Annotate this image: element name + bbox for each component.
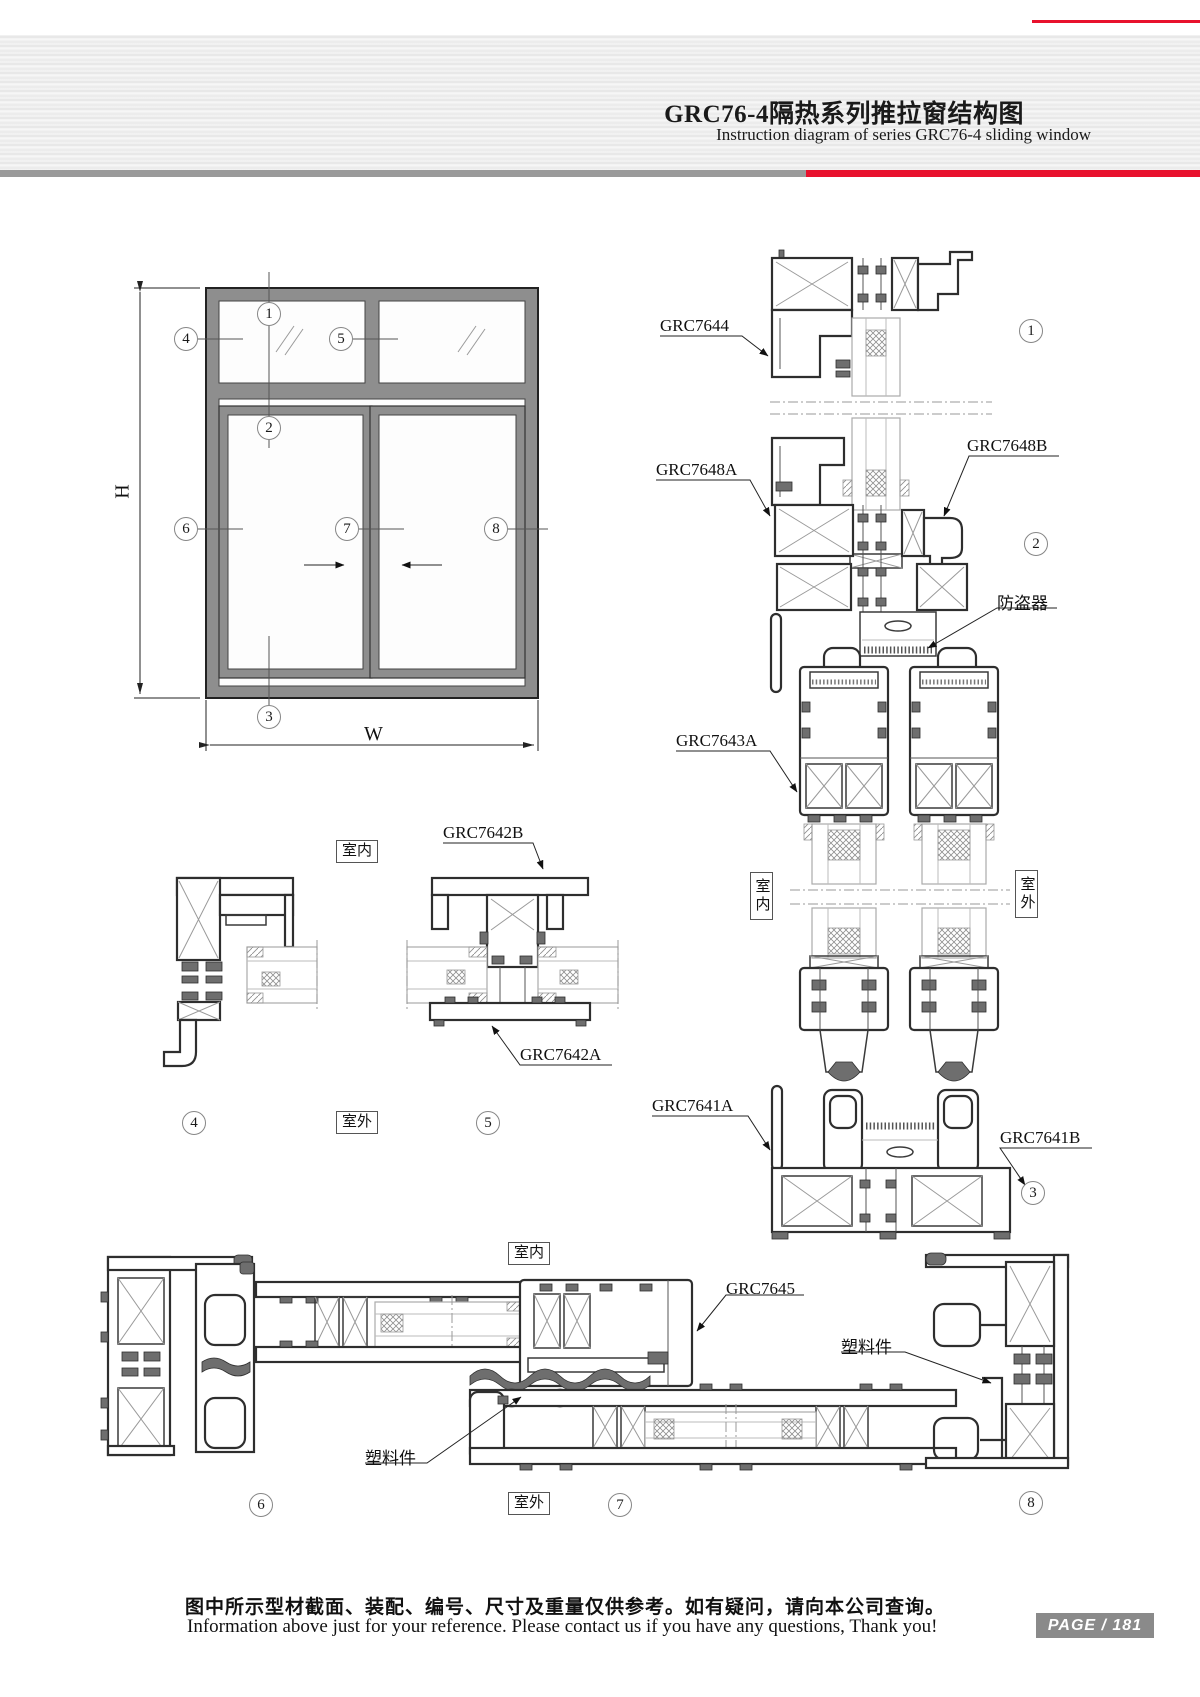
label-grc7648b: GRC7648B [967, 436, 1047, 456]
label-grc7648a: GRC7648A [656, 460, 737, 480]
label-anti-theft: 防盗器 [997, 589, 1048, 614]
label-grc7641a: GRC7641A [652, 1096, 733, 1116]
label-plastic-left: 塑料件 [365, 1444, 416, 1469]
callout-vsec-2: 2 [1024, 532, 1048, 556]
callout-8: 8 [484, 517, 508, 541]
callout-6: 6 [174, 517, 198, 541]
callout-hsec-6: 6 [249, 1493, 273, 1517]
callout-hsec-5: 5 [476, 1111, 500, 1135]
callout-hsec-4: 4 [182, 1111, 206, 1135]
section-5-profile [407, 878, 618, 1026]
label-hsec-bottom-outdoor: 室外 [508, 1492, 550, 1515]
callout-hsec-7: 7 [608, 1493, 632, 1517]
horizontal-section-bottom-drawing [101, 1253, 1068, 1470]
profile-grc7641a-b [772, 1086, 1010, 1239]
label-hsec-top-outdoor: 室外 [336, 1111, 378, 1134]
dim-label-h: H [112, 484, 135, 498]
label-grc7642a: GRC7642A [520, 1045, 601, 1065]
label-hsec-bottom-indoor: 室内 [508, 1242, 550, 1265]
footer-note-en: Information above just for your referenc… [187, 1616, 937, 1638]
callout-vsec-3: 3 [1021, 1181, 1045, 1205]
callout-3: 3 [257, 705, 281, 729]
diagram-canvas [0, 0, 1200, 1697]
label-grc7642b: GRC7642B [443, 823, 523, 843]
label-grc7644: GRC7644 [660, 316, 729, 336]
section-4-profile [164, 878, 317, 1066]
page-number-badge: PAGE / 181 [1036, 1613, 1154, 1638]
profile-grc7643a [800, 667, 998, 822]
callout-5: 5 [329, 327, 353, 351]
label-vsec-outdoor: 室外 [1015, 870, 1038, 918]
vertical-section-drawing [770, 250, 1010, 1239]
sash-glass [790, 824, 1010, 958]
section-8-profile [926, 1253, 1068, 1468]
callout-1: 1 [257, 302, 281, 326]
callout-hsec-8: 8 [1019, 1491, 1043, 1515]
callout-2: 2 [257, 416, 281, 440]
inner-sash-band [256, 1282, 530, 1362]
sash-bottom-rails [800, 956, 998, 1081]
label-plastic-right: 塑料件 [841, 1333, 892, 1358]
horizontal-section-top-drawing [164, 878, 618, 1066]
dim-label-w: W [364, 723, 383, 746]
callout-vsec-1: 1 [1019, 319, 1043, 343]
footer-note-cn: 图中所示型材截面、装配、编号、尺寸及重量仅供参考。如有疑问，请向本公司查询。 [185, 1592, 945, 1619]
callout-7: 7 [335, 517, 359, 541]
callout-4: 4 [174, 327, 198, 351]
sash-end-stile [196, 1262, 254, 1452]
label-grc7641b: GRC7641B [1000, 1128, 1080, 1148]
label-vsec-indoor: 室内 [750, 872, 773, 920]
page: GRC76-4隔热系列推拉窗结构图 Instruction diagram of… [0, 0, 1200, 1697]
label-grc7645: GRC7645 [726, 1279, 795, 1299]
outer-sash-band [470, 1384, 956, 1470]
label-grc7643a: GRC7643A [676, 731, 757, 751]
label-hsec-top-indoor: 室内 [336, 840, 378, 863]
